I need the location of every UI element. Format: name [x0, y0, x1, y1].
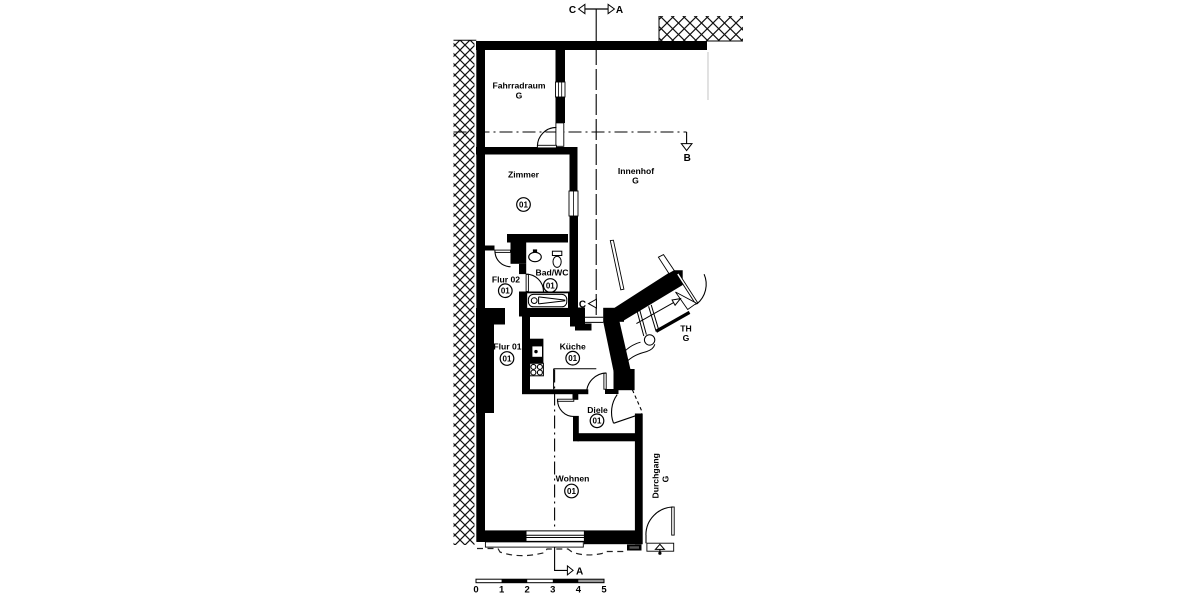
svg-text:A: A — [576, 567, 583, 578]
svg-text:B: B — [684, 153, 691, 164]
svg-text:0: 0 — [473, 584, 478, 595]
svg-text:G: G — [661, 475, 671, 482]
svg-text:01: 01 — [503, 354, 512, 363]
svg-text:01: 01 — [567, 487, 576, 496]
svg-text:Flur 02: Flur 02 — [492, 275, 520, 285]
svg-text:1: 1 — [499, 584, 505, 595]
svg-text:Flur 01: Flur 01 — [493, 342, 521, 352]
svg-text:Wohnen: Wohnen — [556, 474, 590, 484]
svg-text:TH: TH — [680, 324, 691, 334]
svg-text:C: C — [569, 5, 576, 16]
svg-text:Bad/WC: Bad/WC — [536, 268, 569, 278]
svg-text:3: 3 — [550, 584, 555, 595]
svg-text:A: A — [616, 5, 623, 16]
svg-text:Zimmer: Zimmer — [508, 170, 540, 180]
svg-text:G: G — [683, 333, 690, 343]
svg-text:01: 01 — [519, 200, 528, 209]
svg-text:01: 01 — [546, 281, 555, 290]
svg-text:01: 01 — [501, 287, 510, 296]
svg-text:5: 5 — [601, 584, 607, 595]
svg-text:Küche: Küche — [560, 342, 586, 352]
svg-text:Durchgang: Durchgang — [651, 453, 661, 498]
svg-text:01: 01 — [568, 354, 577, 363]
svg-text:Fahrradraum: Fahrradraum — [492, 81, 545, 91]
svg-text:4: 4 — [576, 584, 582, 595]
svg-text:G: G — [632, 176, 639, 186]
svg-text:G: G — [516, 91, 523, 101]
svg-text:2: 2 — [525, 584, 530, 595]
svg-text:01: 01 — [593, 417, 602, 426]
svg-text:Innenhof: Innenhof — [618, 166, 654, 176]
